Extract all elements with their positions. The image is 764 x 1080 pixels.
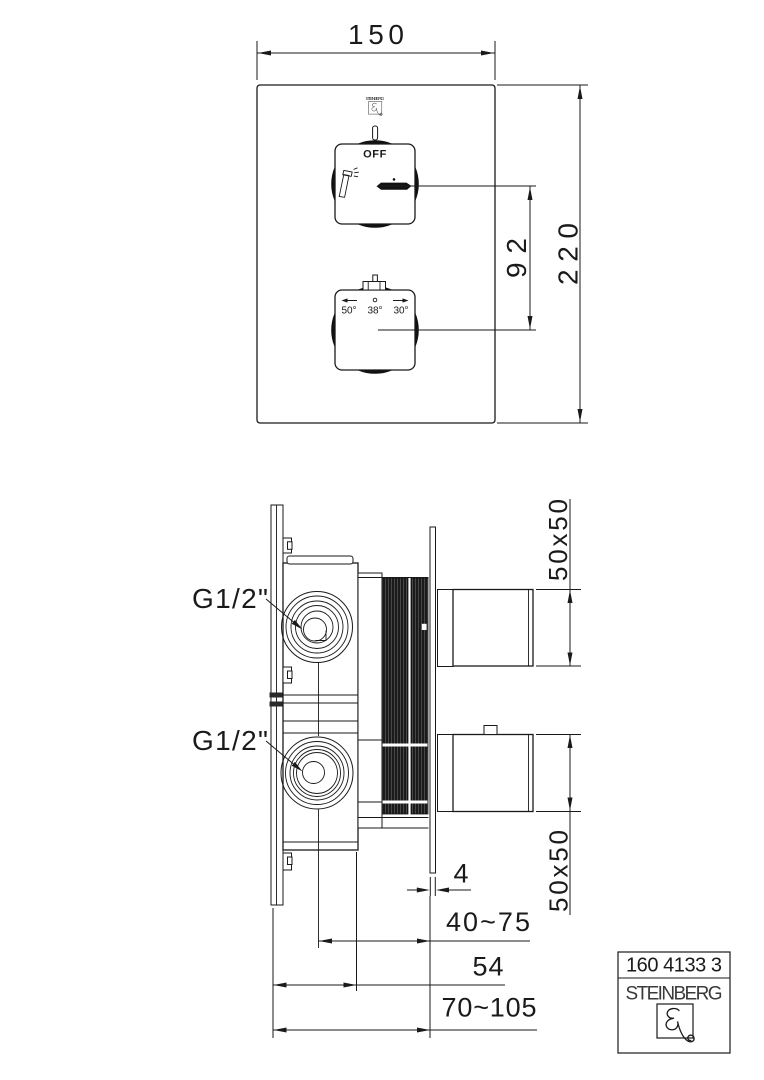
dim-total-depth: 70~105	[273, 993, 537, 1033]
safety-button-side	[484, 726, 497, 735]
plate-brand-text: STEINBERG	[366, 96, 385, 102]
plate-brand-mark: STEINBERG	[366, 96, 385, 115]
brand-logo-icon	[657, 1004, 694, 1042]
dim-width: 150	[257, 19, 495, 80]
sleeve-band	[411, 578, 428, 814]
dim-lower-handle-size-value: 50x50	[544, 830, 574, 912]
wall-flange	[270, 505, 284, 905]
dim-upper-handle-size-value: 50x50	[543, 499, 573, 581]
temp-cold-label: 30°	[393, 306, 408, 317]
dim-body-depth-value: 54	[473, 952, 504, 982]
dim-mounting-depth-value: 40~75	[446, 907, 530, 937]
title-block: 160 4133 3 STEINBERG	[618, 952, 730, 1053]
flange-tab	[283, 853, 292, 870]
dim-upper-handle-size: 50x50	[536, 499, 581, 666]
cartridge-sleeve	[358, 573, 429, 828]
lower-handle: 50° 38° 30°	[331, 275, 419, 374]
flange-tab	[283, 667, 292, 683]
upper-handle: OFF	[331, 140, 419, 228]
valve-body	[281, 538, 358, 870]
dim-height-value: 220	[553, 223, 584, 285]
trim-plate	[430, 527, 436, 873]
drawing-page: 150 STEINBERG OFF	[0, 0, 764, 1080]
dim-plate-thickness: 4	[407, 859, 471, 897]
side-view: G1/2" G1/2" 50x50 50x50	[192, 499, 581, 1038]
lower-connection-label: G1/2"	[192, 725, 268, 756]
brand-logo-icon	[369, 102, 383, 116]
index-marker	[373, 126, 378, 140]
lever-dot	[393, 178, 396, 181]
dim-total-depth-value: 70~105	[442, 993, 537, 1023]
flange-tab	[283, 538, 292, 553]
temp-neutral-label: 38°	[367, 306, 382, 317]
upper-handle-side	[438, 590, 534, 667]
dim-handle-spacing-value: 92	[501, 238, 532, 278]
dim-width-value: 150	[348, 19, 404, 50]
temp-hot-label: 50°	[341, 306, 356, 317]
off-label: OFF	[363, 149, 387, 161]
flange-clip	[270, 693, 284, 698]
title-block-brand: STEINBERG	[626, 984, 723, 1005]
article-number: 160 4133 3	[626, 955, 722, 977]
lower-handle-side	[438, 726, 534, 812]
technical-drawing: 150 STEINBERG OFF	[0, 0, 764, 1080]
upper-connection-label: G1/2"	[192, 583, 268, 614]
dim-handle-spacing: 92	[501, 186, 533, 330]
dim-plate-thickness-value: 4	[453, 859, 468, 889]
sleeve-band	[382, 578, 408, 814]
front-view: 150 STEINBERG OFF	[257, 19, 588, 423]
dim-lower-handle-size: 50x50	[536, 735, 581, 916]
flange-clip	[270, 702, 284, 707]
